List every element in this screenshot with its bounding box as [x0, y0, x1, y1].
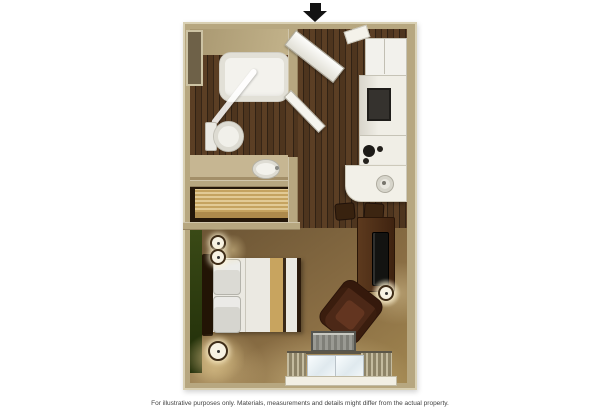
toilet-bowl — [213, 121, 244, 152]
stove-burner-small-2 — [363, 158, 369, 164]
bed-footboard — [297, 258, 301, 332]
tv — [372, 232, 389, 286]
bed-accent-stripe — [270, 258, 283, 332]
closet-bedroom-wall — [183, 222, 300, 230]
disclaimer-text: For illustrative purposes only. Material… — [0, 400, 600, 407]
bed-stripe-divider — [283, 258, 286, 332]
refrigerator — [365, 38, 407, 77]
bed-pillows-bottom — [213, 296, 241, 333]
closet-shelf — [195, 189, 288, 214]
stove-burner-small — [377, 146, 383, 152]
window-sill — [285, 376, 397, 386]
bathroom-entry-wall-lower — [288, 157, 298, 230]
heater-unit — [311, 331, 356, 352]
refrigerator-door-split — [384, 39, 385, 74]
wall-sconce-right — [378, 285, 394, 301]
sink-faucet — [275, 166, 279, 170]
entrance-arrow-icon — [310, 3, 321, 11]
closet-shelf-edge — [195, 212, 288, 218]
wall-niche — [186, 30, 203, 86]
green-accent-wall — [190, 228, 202, 373]
floor-lamp — [208, 341, 228, 361]
microwave — [367, 88, 391, 121]
wall-sconce-lower — [210, 249, 226, 265]
bathtub — [219, 52, 290, 102]
counter-sink-drain — [382, 181, 386, 185]
bed-headboard — [202, 254, 213, 336]
bathroom-closet-wall — [190, 180, 298, 187]
floor-plan — [183, 22, 417, 390]
entrance-arrow-icon — [303, 11, 327, 22]
stove-burner-large — [363, 145, 375, 157]
counter-stool-left — [334, 202, 355, 221]
blanket-seam — [245, 258, 246, 332]
